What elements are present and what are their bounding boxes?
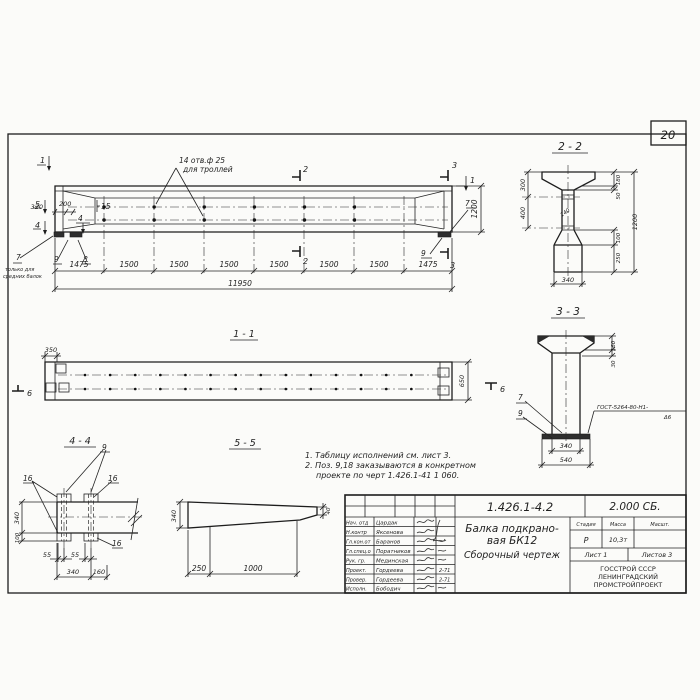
dim-340-v44: 340 bbox=[13, 512, 21, 524]
pos-4: 4 bbox=[78, 214, 83, 223]
dim-320: 320 bbox=[31, 203, 43, 211]
dim-180: 180 bbox=[616, 174, 622, 185]
name-4: Мединская bbox=[376, 558, 409, 564]
name-7: Бободич bbox=[376, 587, 401, 593]
note7-line2: средних балок bbox=[3, 274, 42, 280]
pos-15: 15 bbox=[101, 202, 111, 211]
drawing-title-line1: Балка подкрано- bbox=[465, 523, 559, 535]
note-line-1: 1. Таблицу исполнений см. лист 3. bbox=[305, 451, 451, 460]
dim-seg-6: 1500 bbox=[319, 260, 338, 269]
section-marker-1-right: 1 bbox=[470, 176, 475, 185]
technical-drawing: 20 bbox=[0, 0, 700, 700]
header-stage: Стадия bbox=[576, 522, 595, 528]
section-marker-2-top: 2 bbox=[303, 165, 308, 174]
section-3-3-title: 3 - 3 bbox=[556, 306, 580, 318]
dim-seg-4: 1500 bbox=[219, 260, 238, 269]
org-line3: ПРОМСТРОЙПРОЕКТ bbox=[594, 580, 663, 589]
pos-9-s33: 9 bbox=[518, 409, 523, 418]
dim-250: 250 bbox=[616, 252, 622, 263]
dim-100: 100 bbox=[616, 232, 622, 243]
pos-16-a: 16 bbox=[23, 474, 33, 483]
dim-40: 40 bbox=[326, 507, 332, 514]
header-mass: Масса bbox=[610, 522, 626, 528]
dim-1200-main: 1200 bbox=[470, 199, 479, 218]
dim-55-b: 55 bbox=[71, 551, 79, 559]
dim-340-s22: 340 bbox=[562, 276, 574, 284]
section-marker-4-left: 4 bbox=[35, 221, 40, 230]
dim-1200-section: 1200 bbox=[631, 214, 639, 231]
dim-540: 540 bbox=[560, 456, 572, 464]
name-3: Поратников bbox=[376, 549, 411, 555]
dim-seg-2: 1500 bbox=[119, 260, 138, 269]
name-6: Гордеева bbox=[376, 577, 404, 583]
header-scale: Масшт. bbox=[650, 522, 669, 528]
role-4: Рук. гр. bbox=[346, 558, 366, 564]
dim-340-h: 340 bbox=[67, 568, 79, 576]
dim-200: 200 bbox=[59, 200, 71, 208]
view-1-1-linework bbox=[12, 340, 497, 403]
section-marker-1-left: 1 bbox=[40, 156, 45, 165]
pos-16-c: 16 bbox=[112, 539, 122, 548]
view-4-4-title: 4 - 4 bbox=[69, 436, 91, 447]
note-line-2: 2. Поз. 9,18 заказываются в конкретном bbox=[305, 461, 476, 470]
dim-340-s33: 340 bbox=[560, 442, 572, 450]
dim-total-11950: 11950 bbox=[228, 279, 252, 288]
name-5: Гордеева bbox=[376, 568, 404, 574]
hole-note-line2: для троллей bbox=[182, 165, 233, 174]
role-0: Нач. отд bbox=[346, 521, 369, 527]
hole-note-line1: 14 отв.ф 25 bbox=[179, 156, 225, 165]
section-2-2-title: 2 - 2 bbox=[558, 141, 582, 153]
dim-300: 300 bbox=[519, 179, 527, 191]
sheet-label: Лист 1 bbox=[584, 551, 608, 559]
section-marker-6-right: 6 bbox=[500, 385, 505, 394]
dim-350: 350 bbox=[45, 346, 57, 354]
dim-55-a: 55 bbox=[43, 551, 51, 559]
role-6: Провер. bbox=[346, 577, 367, 583]
org-line1: ГОССТРОЙ СССР bbox=[600, 564, 656, 573]
date-5: 2-71 bbox=[439, 568, 450, 574]
doc-code: 2.000 СБ. bbox=[609, 501, 660, 513]
view-1-1-title: 1 - 1 bbox=[233, 329, 255, 340]
dim-160: 160 bbox=[93, 568, 105, 576]
section-marker-6-left: 6 bbox=[27, 389, 32, 398]
role-7: Исполн. bbox=[346, 587, 367, 593]
section-marker-3-bottom: 3 bbox=[450, 261, 455, 270]
pos-9-v44: 9 bbox=[102, 443, 107, 452]
dim-140: 140 bbox=[559, 207, 571, 218]
dim-30: 30 bbox=[611, 360, 617, 367]
name-2: Баранов bbox=[376, 539, 400, 545]
section-3-3-linework bbox=[516, 318, 686, 468]
role-2: Гл.кон.от bbox=[346, 539, 372, 545]
doc-number: 1.426.1-4.2 bbox=[487, 500, 553, 514]
role-1: Н.контр bbox=[346, 530, 367, 536]
dim-seg-1: 1475 bbox=[69, 260, 88, 269]
name-0: Цардак bbox=[376, 521, 398, 527]
role-3: Гл.спец.о bbox=[346, 549, 371, 555]
weld-note-2: Δ6 bbox=[663, 415, 672, 421]
pos-7-s33: 7 bbox=[518, 393, 523, 402]
value-mass: 10,3т bbox=[609, 536, 627, 544]
dim-seg-5: 1500 bbox=[269, 260, 288, 269]
dim-1000: 1000 bbox=[243, 564, 262, 573]
dim-650: 650 bbox=[458, 375, 466, 387]
note-line-3: проекте по черт 1.426.1-41 1 060. bbox=[316, 471, 459, 480]
pos-7-left: 7 bbox=[16, 253, 21, 262]
weld-note: ГОСТ-5264-80-Н1- bbox=[597, 405, 648, 411]
drawing-title-line3: Сборочный чертеж bbox=[464, 550, 561, 561]
dim-seg-3: 1500 bbox=[169, 260, 188, 269]
sheets-label: Листов 3 bbox=[641, 551, 672, 559]
view-4-4-linework bbox=[19, 447, 144, 580]
dim-seg-8: 1475 bbox=[418, 260, 437, 269]
dim-50: 50 bbox=[616, 192, 622, 199]
dim-seg-7: 1500 bbox=[369, 260, 388, 269]
dim-400: 400 bbox=[519, 207, 527, 219]
dim-100-v44: 100 bbox=[15, 532, 21, 543]
note7-line1: только для bbox=[5, 267, 34, 273]
org-line2: ЛЕНИНГРАДСКИЙ bbox=[598, 572, 658, 581]
blueprint-page: 20 bbox=[0, 0, 700, 700]
role-5: Проект. bbox=[346, 568, 367, 574]
date-6: 2-71 bbox=[439, 577, 450, 583]
name-1: Яксенова bbox=[375, 530, 404, 536]
pos-9-right: 9 bbox=[421, 249, 426, 258]
dim-340-v55: 340 bbox=[170, 510, 178, 522]
value-stage: Р bbox=[584, 536, 589, 545]
signature-rows: Нач. отд Цардак Н.контр Яксенова Гл.кон.… bbox=[346, 521, 450, 593]
section-marker-3-top: 3 bbox=[452, 161, 457, 170]
view-5-5-title: 5 - 5 bbox=[234, 438, 256, 449]
dim-250: 250 bbox=[192, 564, 207, 573]
pos-16-b: 16 bbox=[108, 474, 118, 483]
dim-160: 160 bbox=[611, 340, 617, 351]
pos-9-left: 9 bbox=[54, 255, 59, 264]
section-marker-2-bottom: 2 bbox=[303, 257, 308, 266]
page-number: 20 bbox=[661, 128, 676, 142]
drawing-title-line2: вая БК12 bbox=[487, 535, 538, 547]
section-2-2-linework bbox=[522, 153, 638, 287]
main-elevation-linework bbox=[13, 156, 485, 292]
